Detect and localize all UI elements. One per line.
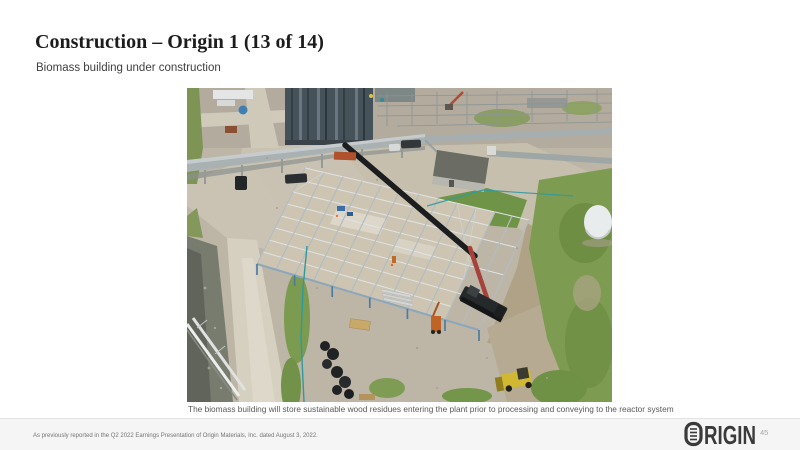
page-number: 45 bbox=[760, 428, 768, 437]
origin-logo-o-icon bbox=[686, 424, 701, 445]
origin-logo: RIGIN bbox=[684, 421, 758, 447]
photo-caption: The biomass building will store sustaina… bbox=[188, 404, 748, 414]
footnote: As previously reported in the Q2 2022 Ea… bbox=[33, 433, 318, 439]
construction-aerial-photo bbox=[187, 88, 612, 402]
construction-photo-illustration bbox=[187, 88, 612, 402]
presentation-slide: Construction – Origin 1 (13 of 14) Bioma… bbox=[0, 0, 800, 450]
origin-logo-text: RIGIN bbox=[704, 421, 756, 447]
page-subtitle: Biomass building under construction bbox=[36, 62, 221, 74]
page-title: Construction – Origin 1 (13 of 14) bbox=[35, 31, 324, 54]
